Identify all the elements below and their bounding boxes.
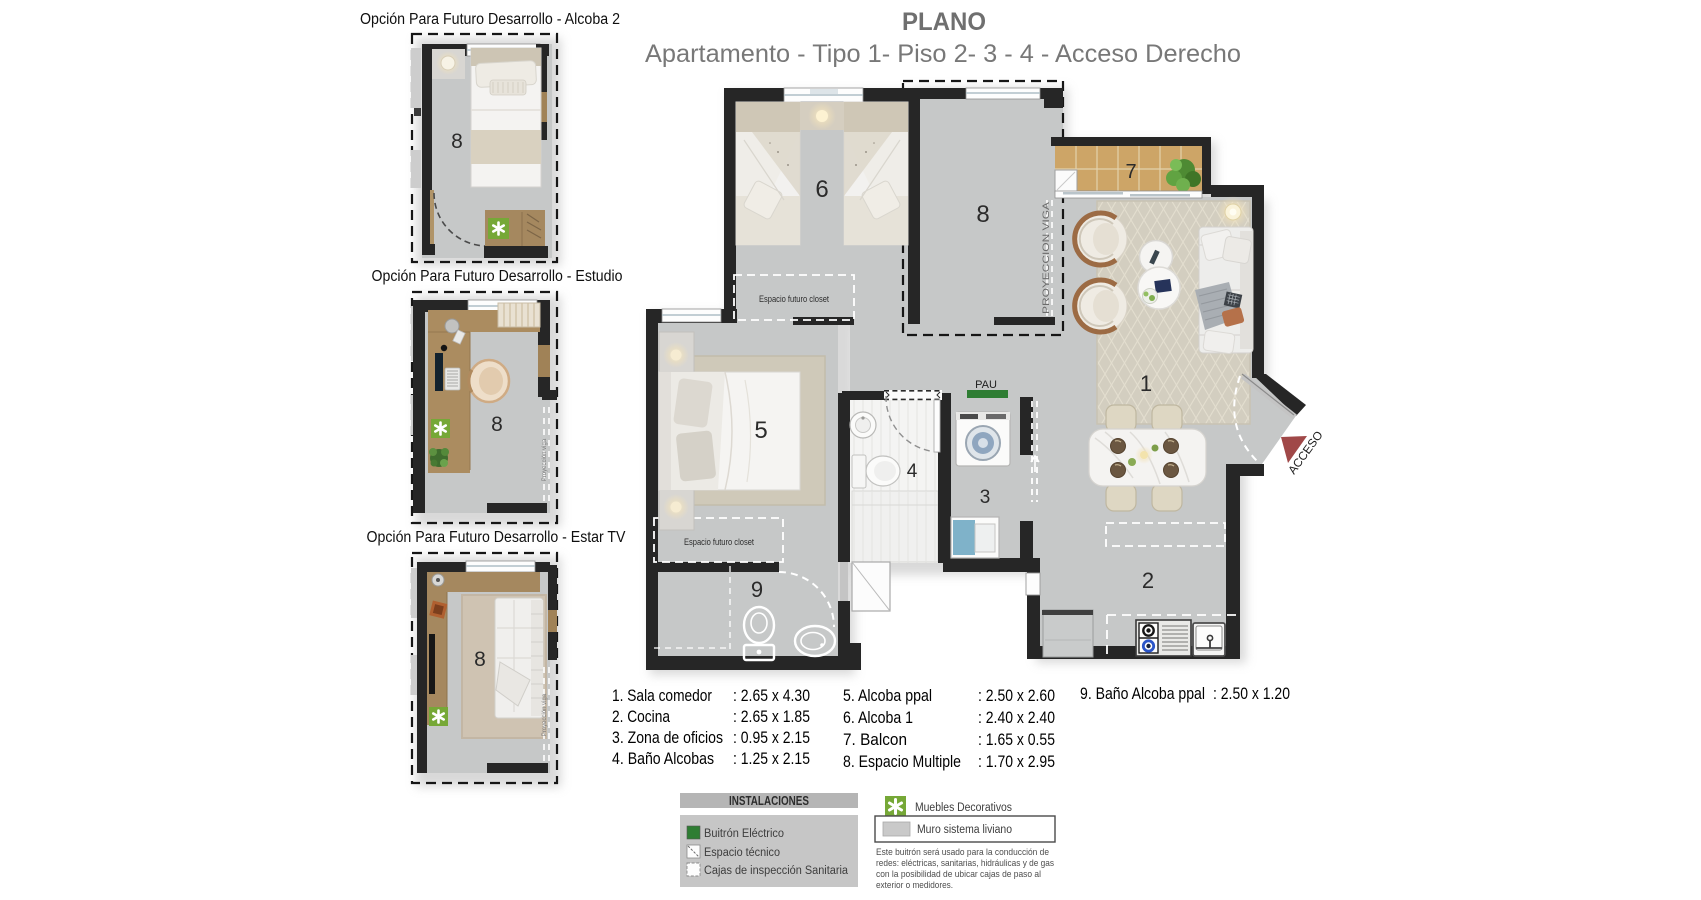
svg-text:: 1.25 x 2.15: : 1.25 x 2.15 [733, 749, 810, 768]
svg-text:: 2.50 x 2.60: : 2.50 x 2.60 [978, 686, 1055, 705]
svg-text:8. Espacio Multiple: 8. Espacio Multiple [843, 752, 961, 771]
svg-text:con la posibilidad de ubicar c: con la posibilidad de ubicar cajas de pa… [876, 869, 1041, 879]
svg-text:: 2.50 x 1.20: : 2.50 x 1.20 [1213, 684, 1290, 703]
svg-text:Muro sistema liviano: Muro sistema liviano [917, 824, 1012, 836]
svg-text:4: 4 [907, 461, 918, 482]
svg-text:9: 9 [751, 577, 763, 602]
svg-text:Cajas de inspección Sanitaria: Cajas de inspección Sanitaria [704, 865, 849, 877]
svg-text:PAU: PAU [975, 379, 997, 391]
svg-text:6: 6 [815, 176, 828, 203]
svg-text:5. Alcoba ppal: 5. Alcoba ppal [843, 686, 932, 705]
svg-text:8: 8 [976, 201, 989, 228]
svg-text:INSTALACIONES: INSTALACIONES [729, 794, 809, 808]
svg-text:Espacio técnico: Espacio técnico [704, 847, 780, 859]
svg-text:1: 1 [1140, 371, 1152, 396]
svg-text:3. Zona de oficios: 3. Zona de oficios [612, 728, 723, 747]
svg-text:Opción Para Futuro Desarrollo: Opción Para Futuro Desarrollo - Estar TV [367, 529, 627, 546]
svg-text:: 2.65 x 1.85: : 2.65 x 1.85 [733, 707, 810, 726]
svg-text:: 2.65 x 4.30: : 2.65 x 4.30 [733, 686, 810, 705]
svg-text:PROYECCION VIGA: PROYECCION VIGA [1041, 202, 1051, 314]
svg-text:8: 8 [491, 413, 503, 436]
svg-text:9. Baño Alcoba ppal: 9. Baño Alcoba ppal [1080, 684, 1205, 703]
svg-text:7: 7 [1125, 161, 1136, 183]
svg-text:: 1.70 x 2.95: : 1.70 x 2.95 [978, 752, 1055, 771]
svg-text:6. Alcoba 1: 6. Alcoba 1 [843, 708, 913, 727]
svg-text:Apartamento - Tipo 1- Piso 2-: Apartamento - Tipo 1- Piso 2- 3 - 4 - Ac… [645, 40, 1241, 68]
svg-text:Proyección viga: Proyección viga [542, 438, 548, 481]
svg-text:Opción Para Futuro Desarrollo: Opción Para Futuro Desarrollo - Estudio [372, 268, 623, 285]
svg-text:Muebles Decorativos: Muebles Decorativos [915, 802, 1012, 814]
svg-text:exterior o medidores.: exterior o medidores. [876, 880, 953, 890]
svg-text:Este buitrón será usado para l: Este buitrón será usado para la conducci… [876, 847, 1049, 857]
svg-text:: 1.65 x 0.55: : 1.65 x 0.55 [978, 730, 1055, 749]
svg-text:3: 3 [980, 487, 991, 508]
svg-text:Buitrón Eléctrico: Buitrón Eléctrico [704, 828, 784, 840]
svg-text:Espacio futuro closet: Espacio futuro closet [684, 537, 754, 547]
svg-text:7. Balcon: 7. Balcon [843, 730, 907, 749]
svg-text:Proyección viga: Proyección viga [542, 693, 548, 736]
svg-text:2: 2 [1142, 568, 1154, 593]
svg-text:8: 8 [474, 648, 486, 671]
svg-text:1. Sala comedor: 1. Sala comedor [612, 686, 712, 705]
svg-text:: 0.95 x 2.15: : 0.95 x 2.15 [733, 728, 810, 747]
svg-text:8: 8 [451, 130, 463, 153]
svg-text:4. Baño Alcobas: 4. Baño Alcobas [612, 749, 714, 768]
svg-text:: 2.40 x 2.40: : 2.40 x 2.40 [978, 708, 1055, 727]
svg-text:PLANO: PLANO [902, 8, 986, 36]
svg-text:5: 5 [754, 417, 767, 444]
svg-text:redes: eléctricas, sanitarias,: redes: eléctricas, sanitarias, hidráulic… [876, 858, 1054, 868]
svg-text:2. Cocina: 2. Cocina [612, 707, 670, 726]
svg-text:Opción Para Futuro Desarrollo: Opción Para Futuro Desarrollo - Alcoba 2 [360, 11, 620, 28]
svg-text:Espacio futuro closet: Espacio futuro closet [759, 294, 829, 304]
